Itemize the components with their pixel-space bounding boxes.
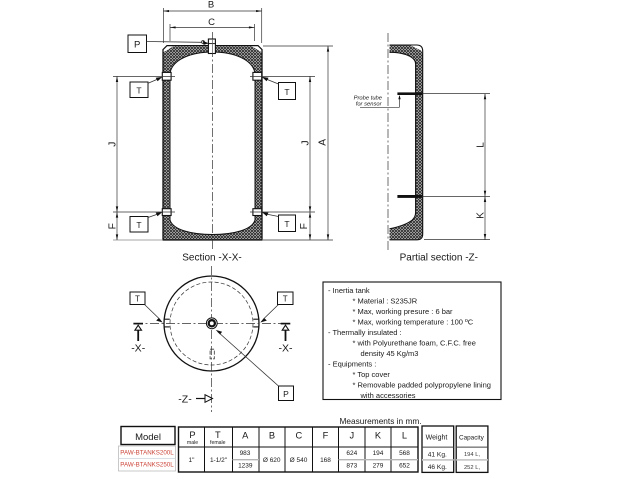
svg-text:* Top cover: * Top cover xyxy=(353,370,391,379)
svg-text:PAW-BTANKS250L: PAW-BTANKS250L xyxy=(120,461,174,468)
svg-text:T: T xyxy=(284,219,289,229)
svg-text:P: P xyxy=(189,430,195,440)
svg-text:for sensor: for sensor xyxy=(356,102,383,108)
svg-text:1-1/2": 1-1/2" xyxy=(210,457,228,464)
svg-text:194 L,: 194 L, xyxy=(464,452,481,458)
svg-text:J: J xyxy=(301,140,312,145)
svg-text:P: P xyxy=(283,389,289,399)
svg-text:F: F xyxy=(323,430,329,440)
svg-text:- Inertia tank: - Inertia tank xyxy=(328,286,370,295)
svg-text:P: P xyxy=(134,40,140,51)
svg-text:279: 279 xyxy=(373,463,384,470)
svg-text:A: A xyxy=(242,430,249,440)
svg-text:female: female xyxy=(210,440,226,446)
svg-text:Weight: Weight xyxy=(426,434,448,441)
svg-text:C: C xyxy=(295,430,302,440)
svg-text:-X-: -X- xyxy=(131,343,146,355)
svg-text:46 Kg.: 46 Kg. xyxy=(428,464,447,471)
svg-text:L: L xyxy=(402,430,407,440)
svg-text:194: 194 xyxy=(373,450,384,457)
svg-text:F: F xyxy=(108,223,119,229)
svg-text:T: T xyxy=(215,430,221,440)
svg-text:Ø 540: Ø 540 xyxy=(290,457,308,464)
svg-text:- Equipments :: - Equipments : xyxy=(328,360,376,369)
svg-text:* with Polyurethane foam, C.F.: * with Polyurethane foam, C.F.C. free xyxy=(353,339,476,348)
svg-text:41 Kg.: 41 Kg. xyxy=(428,452,447,459)
svg-text:Model: Model xyxy=(135,432,161,443)
svg-text:L: L xyxy=(476,142,487,148)
svg-text:T: T xyxy=(136,220,141,230)
svg-text:density 45 Kg/m3: density 45 Kg/m3 xyxy=(361,349,419,358)
svg-text:-X-: -X- xyxy=(279,343,294,355)
svg-text:K: K xyxy=(375,430,382,440)
svg-text:B: B xyxy=(269,430,275,440)
svg-text:B: B xyxy=(208,0,214,11)
svg-text:Ø 620: Ø 620 xyxy=(263,457,281,464)
svg-text:C: C xyxy=(208,17,215,28)
svg-text:873: 873 xyxy=(346,463,357,470)
svg-text:168: 168 xyxy=(320,457,331,464)
svg-text:568: 568 xyxy=(399,450,410,457)
svg-text:1": 1" xyxy=(189,457,196,464)
svg-text:K: K xyxy=(476,212,487,219)
svg-text:T: T xyxy=(284,87,289,97)
svg-text:-Z-: -Z- xyxy=(178,394,192,406)
svg-text:T: T xyxy=(135,295,140,304)
svg-text:624: 624 xyxy=(346,450,357,457)
svg-text:* Max, working presure : 6 bar: * Max, working presure : 6 bar xyxy=(353,307,454,316)
svg-text:252 L,: 252 L, xyxy=(464,465,481,471)
svg-text:- Thermally insulated :: - Thermally insulated : xyxy=(328,328,402,337)
svg-text:A: A xyxy=(318,139,329,146)
svg-text:J: J xyxy=(107,142,118,147)
svg-text:Section -X-X-: Section -X-X- xyxy=(182,253,241,264)
svg-text:PAW-BTANKS200L: PAW-BTANKS200L xyxy=(120,449,174,456)
svg-text:* Material : S235JR: * Material : S235JR xyxy=(353,297,418,306)
svg-text:Measurements in mm.: Measurements in mm. xyxy=(340,416,422,426)
svg-text:male: male xyxy=(187,440,198,446)
svg-text:F: F xyxy=(299,223,310,229)
svg-text:T: T xyxy=(283,295,288,304)
svg-text:T: T xyxy=(136,86,141,96)
svg-text:652: 652 xyxy=(399,463,410,470)
svg-text:with accessories: with accessories xyxy=(360,391,416,400)
svg-text:Capacity: Capacity xyxy=(459,434,485,441)
svg-text:1239: 1239 xyxy=(238,463,253,470)
svg-text:983: 983 xyxy=(240,450,251,457)
svg-text:* Max, working temperature : 1: * Max, working temperature : 100 ºC xyxy=(353,318,474,327)
svg-text:Partial section -Z-: Partial section -Z- xyxy=(400,253,478,264)
svg-text:J: J xyxy=(349,430,354,440)
svg-text:* Removable padded polypropyle: * Removable padded polypropylene lining xyxy=(353,381,491,390)
